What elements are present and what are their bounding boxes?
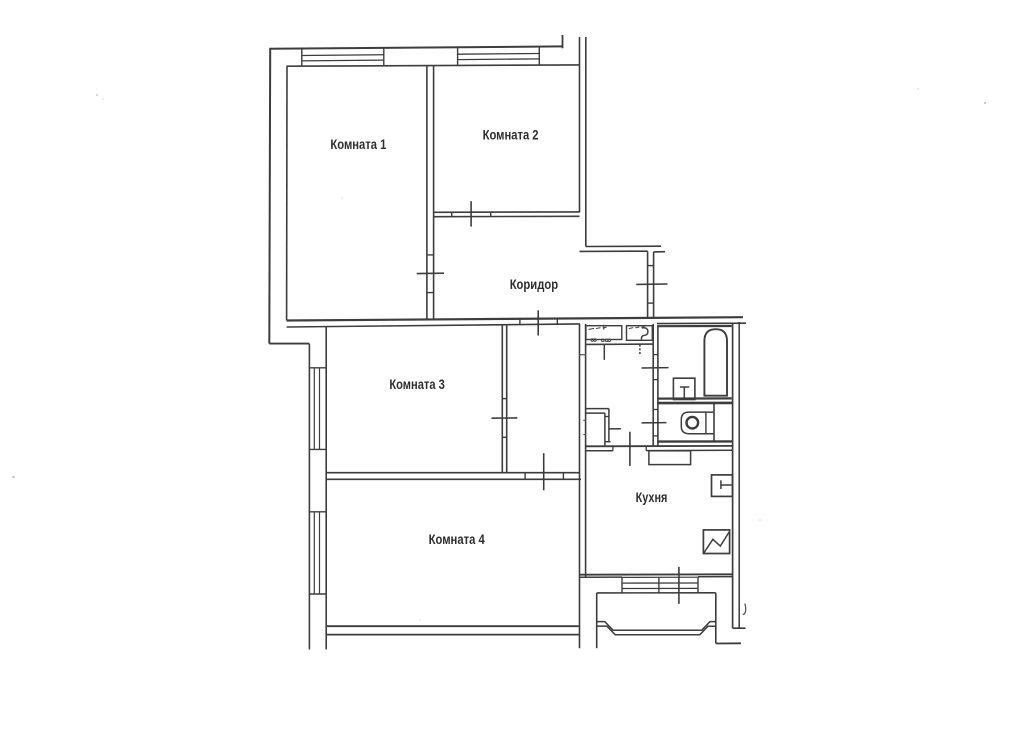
svg-text:Кухня: Кухня [636,489,668,505]
svg-text:Комната 2: Комната 2 [483,126,539,142]
svg-text:Коридор: Коридор [510,276,558,292]
svg-text:Комната 1: Комната 1 [330,136,386,152]
svg-text:Комната 3: Комната 3 [389,376,445,392]
svg-text:Комната 4: Комната 4 [429,531,485,547]
